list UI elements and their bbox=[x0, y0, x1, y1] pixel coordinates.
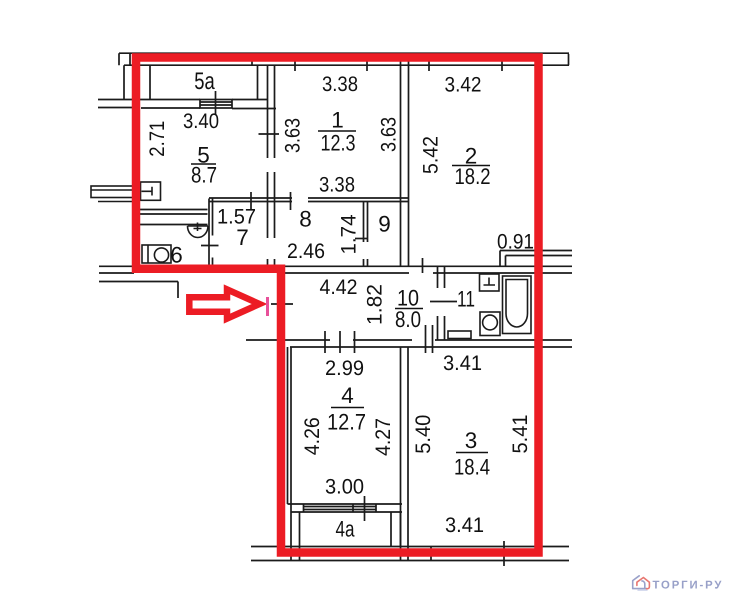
svg-text:3.38: 3.38 bbox=[322, 73, 358, 96]
svg-text:3.00: 3.00 bbox=[325, 476, 364, 499]
svg-text:5.40: 5.40 bbox=[412, 415, 435, 454]
svg-text:18.4: 18.4 bbox=[454, 455, 490, 480]
svg-text:2.99: 2.99 bbox=[325, 357, 364, 380]
svg-text:9: 9 bbox=[378, 212, 391, 237]
svg-text:3.41: 3.41 bbox=[445, 514, 484, 537]
svg-text:12.7: 12.7 bbox=[327, 410, 366, 435]
svg-text:4.42: 4.42 bbox=[320, 276, 358, 299]
svg-text:3.40: 3.40 bbox=[183, 110, 219, 133]
svg-text:1.82: 1.82 bbox=[364, 284, 387, 325]
svg-text:1: 1 bbox=[331, 108, 344, 133]
svg-text:2.46: 2.46 bbox=[287, 240, 325, 263]
svg-text:8.0: 8.0 bbox=[395, 307, 421, 332]
svg-text:3.42: 3.42 bbox=[445, 74, 482, 97]
svg-text:6: 6 bbox=[170, 243, 183, 268]
svg-text:ТОРГИ-РУ: ТОРГИ-РУ bbox=[653, 580, 724, 592]
svg-text:3.63: 3.63 bbox=[378, 117, 401, 152]
svg-text:3.38: 3.38 bbox=[319, 174, 355, 197]
svg-text:0.91: 0.91 bbox=[497, 231, 534, 254]
svg-text:4: 4 bbox=[341, 383, 354, 408]
svg-text:7: 7 bbox=[236, 225, 249, 250]
svg-text:4.26: 4.26 bbox=[301, 417, 324, 455]
svg-text:1.74: 1.74 bbox=[338, 214, 361, 254]
svg-text:8.7: 8.7 bbox=[191, 163, 217, 188]
svg-text:5a: 5a bbox=[194, 68, 215, 95]
svg-text:11: 11 bbox=[457, 287, 475, 312]
svg-text:12.3: 12.3 bbox=[321, 131, 356, 156]
svg-text:4a: 4a bbox=[336, 517, 355, 542]
svg-text:5.41: 5.41 bbox=[509, 415, 532, 454]
svg-text:3.41: 3.41 bbox=[443, 352, 482, 375]
svg-text:5.42: 5.42 bbox=[420, 136, 443, 174]
svg-text:4.27: 4.27 bbox=[372, 418, 395, 456]
svg-text:3: 3 bbox=[465, 428, 478, 453]
svg-text:8: 8 bbox=[299, 207, 312, 232]
svg-text:18.2: 18.2 bbox=[455, 164, 491, 189]
svg-text:3.63: 3.63 bbox=[282, 118, 305, 153]
svg-text:2.71: 2.71 bbox=[146, 121, 169, 157]
